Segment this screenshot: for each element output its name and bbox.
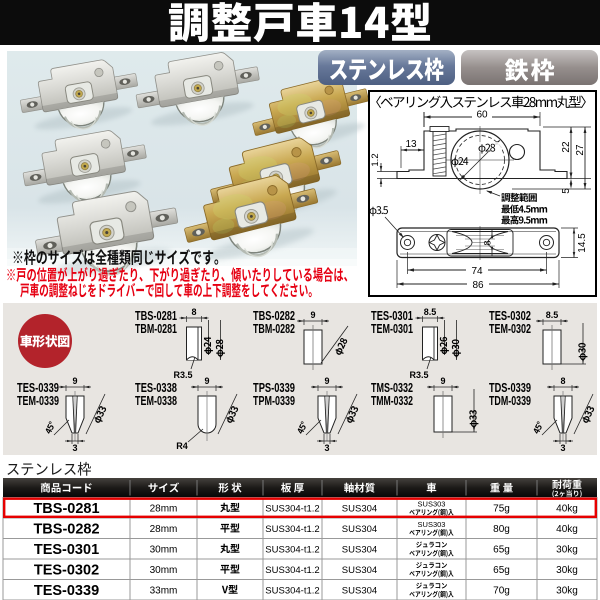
svg-text:60: 60 <box>476 110 488 121</box>
svg-text:SUS304: SUS304 <box>342 524 377 535</box>
svg-text:R4: R4 <box>176 441 188 451</box>
svg-text:SUS304-t1.2: SUS304-t1.2 <box>265 585 319 596</box>
svg-text:SUS304-t1.2: SUS304-t1.2 <box>265 503 319 514</box>
svg-text:74: 74 <box>471 266 483 277</box>
svg-text:33mm: 33mm <box>150 585 178 596</box>
svg-text:TES-0339: TES-0339 <box>34 583 99 599</box>
svg-text:TMM-0332: TMM-0332 <box>371 394 413 408</box>
svg-text:8: 8 <box>191 307 196 317</box>
svg-text:TES-0301: TES-0301 <box>371 309 413 323</box>
svg-text:SUS304: SUS304 <box>342 503 377 514</box>
svg-text:SUS304-t1.2: SUS304-t1.2 <box>265 544 319 555</box>
svg-text:TEM-0302: TEM-0302 <box>489 322 531 336</box>
svg-text:9: 9 <box>440 376 445 386</box>
svg-text:TES-0339: TES-0339 <box>17 381 59 395</box>
svg-text:8.5: 8.5 <box>424 307 437 317</box>
svg-text:9: 9 <box>310 310 315 320</box>
svg-text:65g: 65g <box>493 544 510 555</box>
svg-text:70g: 70g <box>493 585 510 596</box>
svg-text:TPM-0339: TPM-0339 <box>253 394 295 408</box>
svg-text:1.2: 1.2 <box>370 153 381 166</box>
svg-text:SUS304-t1.2: SUS304-t1.2 <box>265 565 319 576</box>
svg-text:SUS304: SUS304 <box>342 565 377 576</box>
svg-text:TDM-0339: TDM-0339 <box>489 394 531 408</box>
svg-text:TES-0302: TES-0302 <box>34 562 99 578</box>
svg-text:TBM-0282: TBM-0282 <box>253 322 295 336</box>
svg-text:30kg: 30kg <box>556 565 578 576</box>
svg-text:14.5: 14.5 <box>577 233 588 253</box>
svg-text:86: 86 <box>472 280 484 291</box>
svg-text:30kg: 30kg <box>556 585 578 596</box>
svg-text:TES-0301: TES-0301 <box>34 542 99 558</box>
svg-text:TPS-0339: TPS-0339 <box>253 381 295 395</box>
svg-text:80g: 80g <box>493 524 510 535</box>
svg-text:TMS-0332: TMS-0332 <box>371 381 413 395</box>
svg-text:28mm: 28mm <box>150 503 178 514</box>
svg-text:27: 27 <box>575 144 586 156</box>
svg-text:9: 9 <box>72 376 77 386</box>
svg-text:65g: 65g <box>493 565 510 576</box>
svg-text:TDS-0339: TDS-0339 <box>489 381 531 395</box>
svg-text:TBS-0281: TBS-0281 <box>33 501 99 517</box>
svg-text:SUS304-t1.2: SUS304-t1.2 <box>265 524 319 535</box>
svg-text:40kg: 40kg <box>556 524 578 535</box>
svg-text:TEM-0301: TEM-0301 <box>371 322 413 336</box>
svg-text:TBS-0282: TBS-0282 <box>33 521 99 537</box>
svg-text:TBS-0282: TBS-0282 <box>253 309 295 323</box>
svg-text:8: 8 <box>483 240 493 245</box>
svg-text:SUS304: SUS304 <box>342 544 377 555</box>
svg-text:3: 3 <box>72 443 77 453</box>
svg-text:TEM-0338: TEM-0338 <box>135 394 177 408</box>
svg-text:13: 13 <box>405 139 417 150</box>
svg-text:R3.5: R3.5 <box>409 370 428 380</box>
svg-text:SUS304: SUS304 <box>342 585 377 596</box>
svg-text:3: 3 <box>560 443 565 453</box>
svg-text:9: 9 <box>204 376 209 386</box>
svg-text:TEM-0339: TEM-0339 <box>17 394 59 408</box>
svg-text:30kg: 30kg <box>556 544 578 555</box>
svg-text:40kg: 40kg <box>556 503 578 514</box>
svg-text:9: 9 <box>324 376 329 386</box>
svg-text:3: 3 <box>324 443 329 453</box>
svg-text:TBS-0281: TBS-0281 <box>135 309 177 323</box>
svg-text:28mm: 28mm <box>150 524 178 535</box>
svg-text:22: 22 <box>561 141 572 153</box>
svg-text:R3.5: R3.5 <box>173 370 192 380</box>
svg-text:75g: 75g <box>493 503 510 514</box>
svg-text:SUS303: SUS303 <box>418 499 446 508</box>
svg-text:8.5: 8.5 <box>546 310 559 320</box>
svg-text:5: 5 <box>561 188 572 194</box>
svg-text:SUS303: SUS303 <box>418 520 446 529</box>
svg-text:8: 8 <box>560 376 565 386</box>
svg-text:30mm: 30mm <box>150 544 178 555</box>
svg-text:30mm: 30mm <box>150 565 178 576</box>
svg-text:TBM-0281: TBM-0281 <box>135 322 177 336</box>
svg-text:TES-0338: TES-0338 <box>135 381 177 395</box>
svg-text:TES-0302: TES-0302 <box>489 309 531 323</box>
